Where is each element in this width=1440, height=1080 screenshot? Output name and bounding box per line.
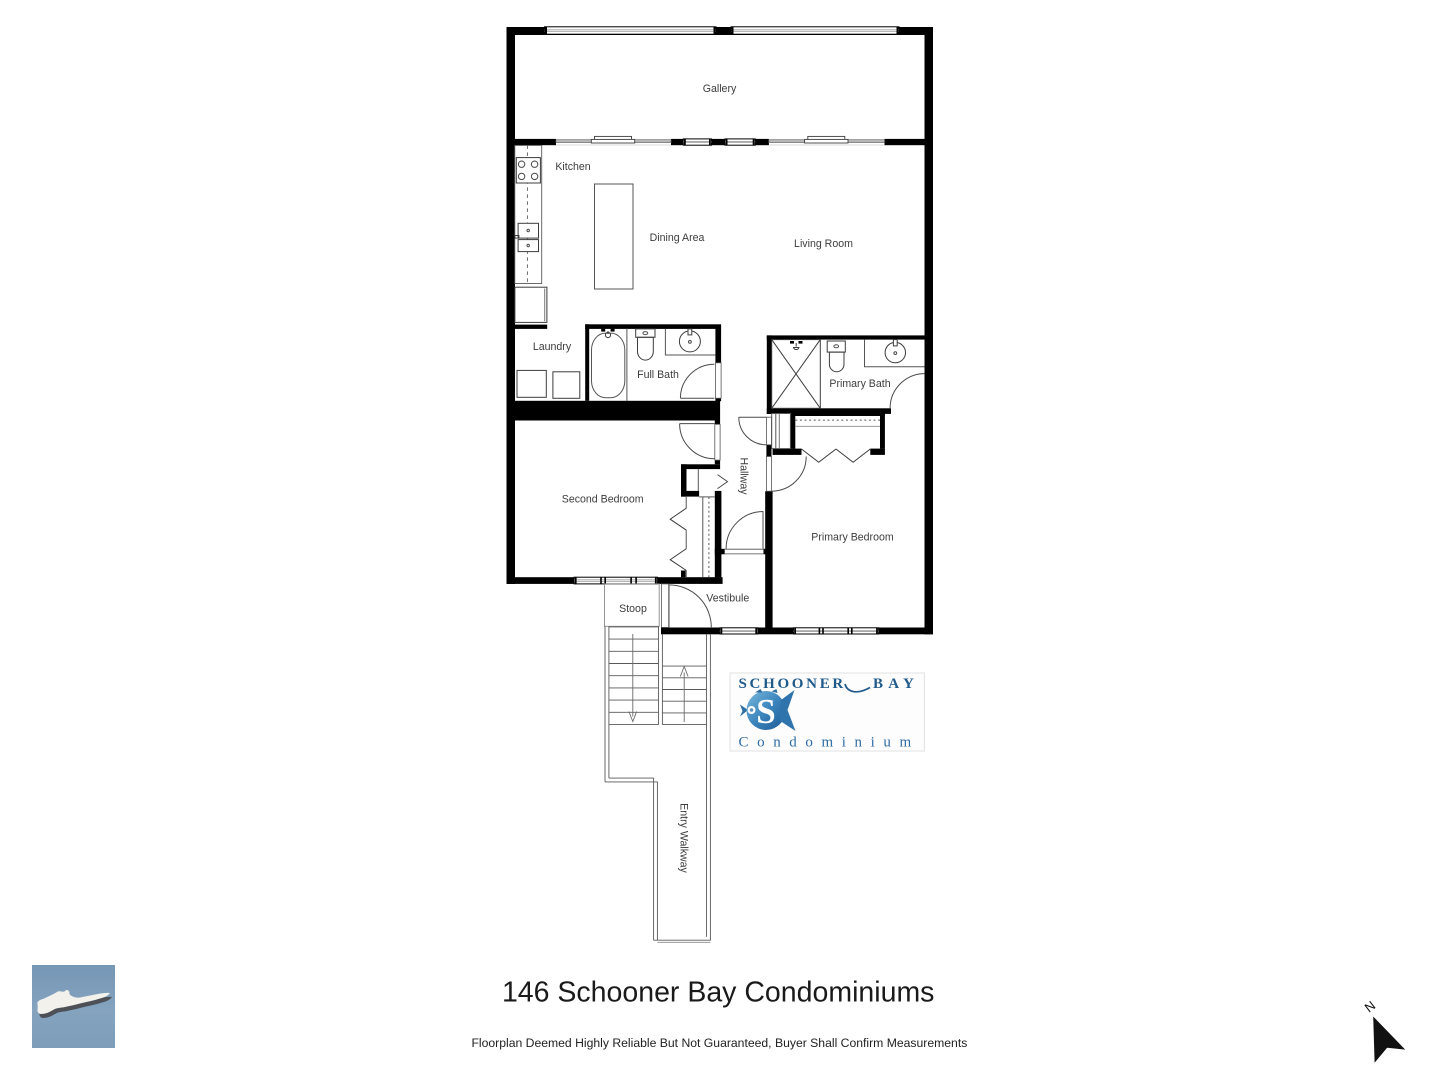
svg-text:BAY: BAY xyxy=(873,676,919,692)
svg-text:Gallery: Gallery xyxy=(703,83,737,95)
svg-text:Entry Walkway: Entry Walkway xyxy=(678,803,690,873)
svg-text:Living Room: Living Room xyxy=(794,238,853,250)
svg-text:Laundry: Laundry xyxy=(533,341,572,353)
svg-text:Dining Area: Dining Area xyxy=(650,232,705,244)
svg-text:Primary Bath: Primary Bath xyxy=(829,378,890,390)
svg-text:N: N xyxy=(1362,998,1379,1016)
svg-text:Primary Bedroom: Primary Bedroom xyxy=(811,532,894,544)
svg-text:Stoop: Stoop xyxy=(619,603,647,615)
svg-text:Second Bedroom: Second Bedroom xyxy=(562,494,644,506)
svg-text:S: S xyxy=(756,692,775,731)
svg-text:Condominium: Condominium xyxy=(739,735,920,751)
svg-text:Vestibule: Vestibule xyxy=(706,593,749,605)
svg-text:Hallway: Hallway xyxy=(738,457,750,495)
svg-text:Kitchen: Kitchen xyxy=(555,161,590,173)
svg-text:SCHOONER: SCHOONER xyxy=(739,676,846,692)
svg-text:Floorplan Deemed Highly Reliab: Floorplan Deemed Highly Reliable But Not… xyxy=(471,1036,967,1050)
svg-text:146 Schooner Bay Condominiums: 146 Schooner Bay Condominiums xyxy=(502,977,935,1009)
svg-text:Full Bath: Full Bath xyxy=(637,369,679,381)
